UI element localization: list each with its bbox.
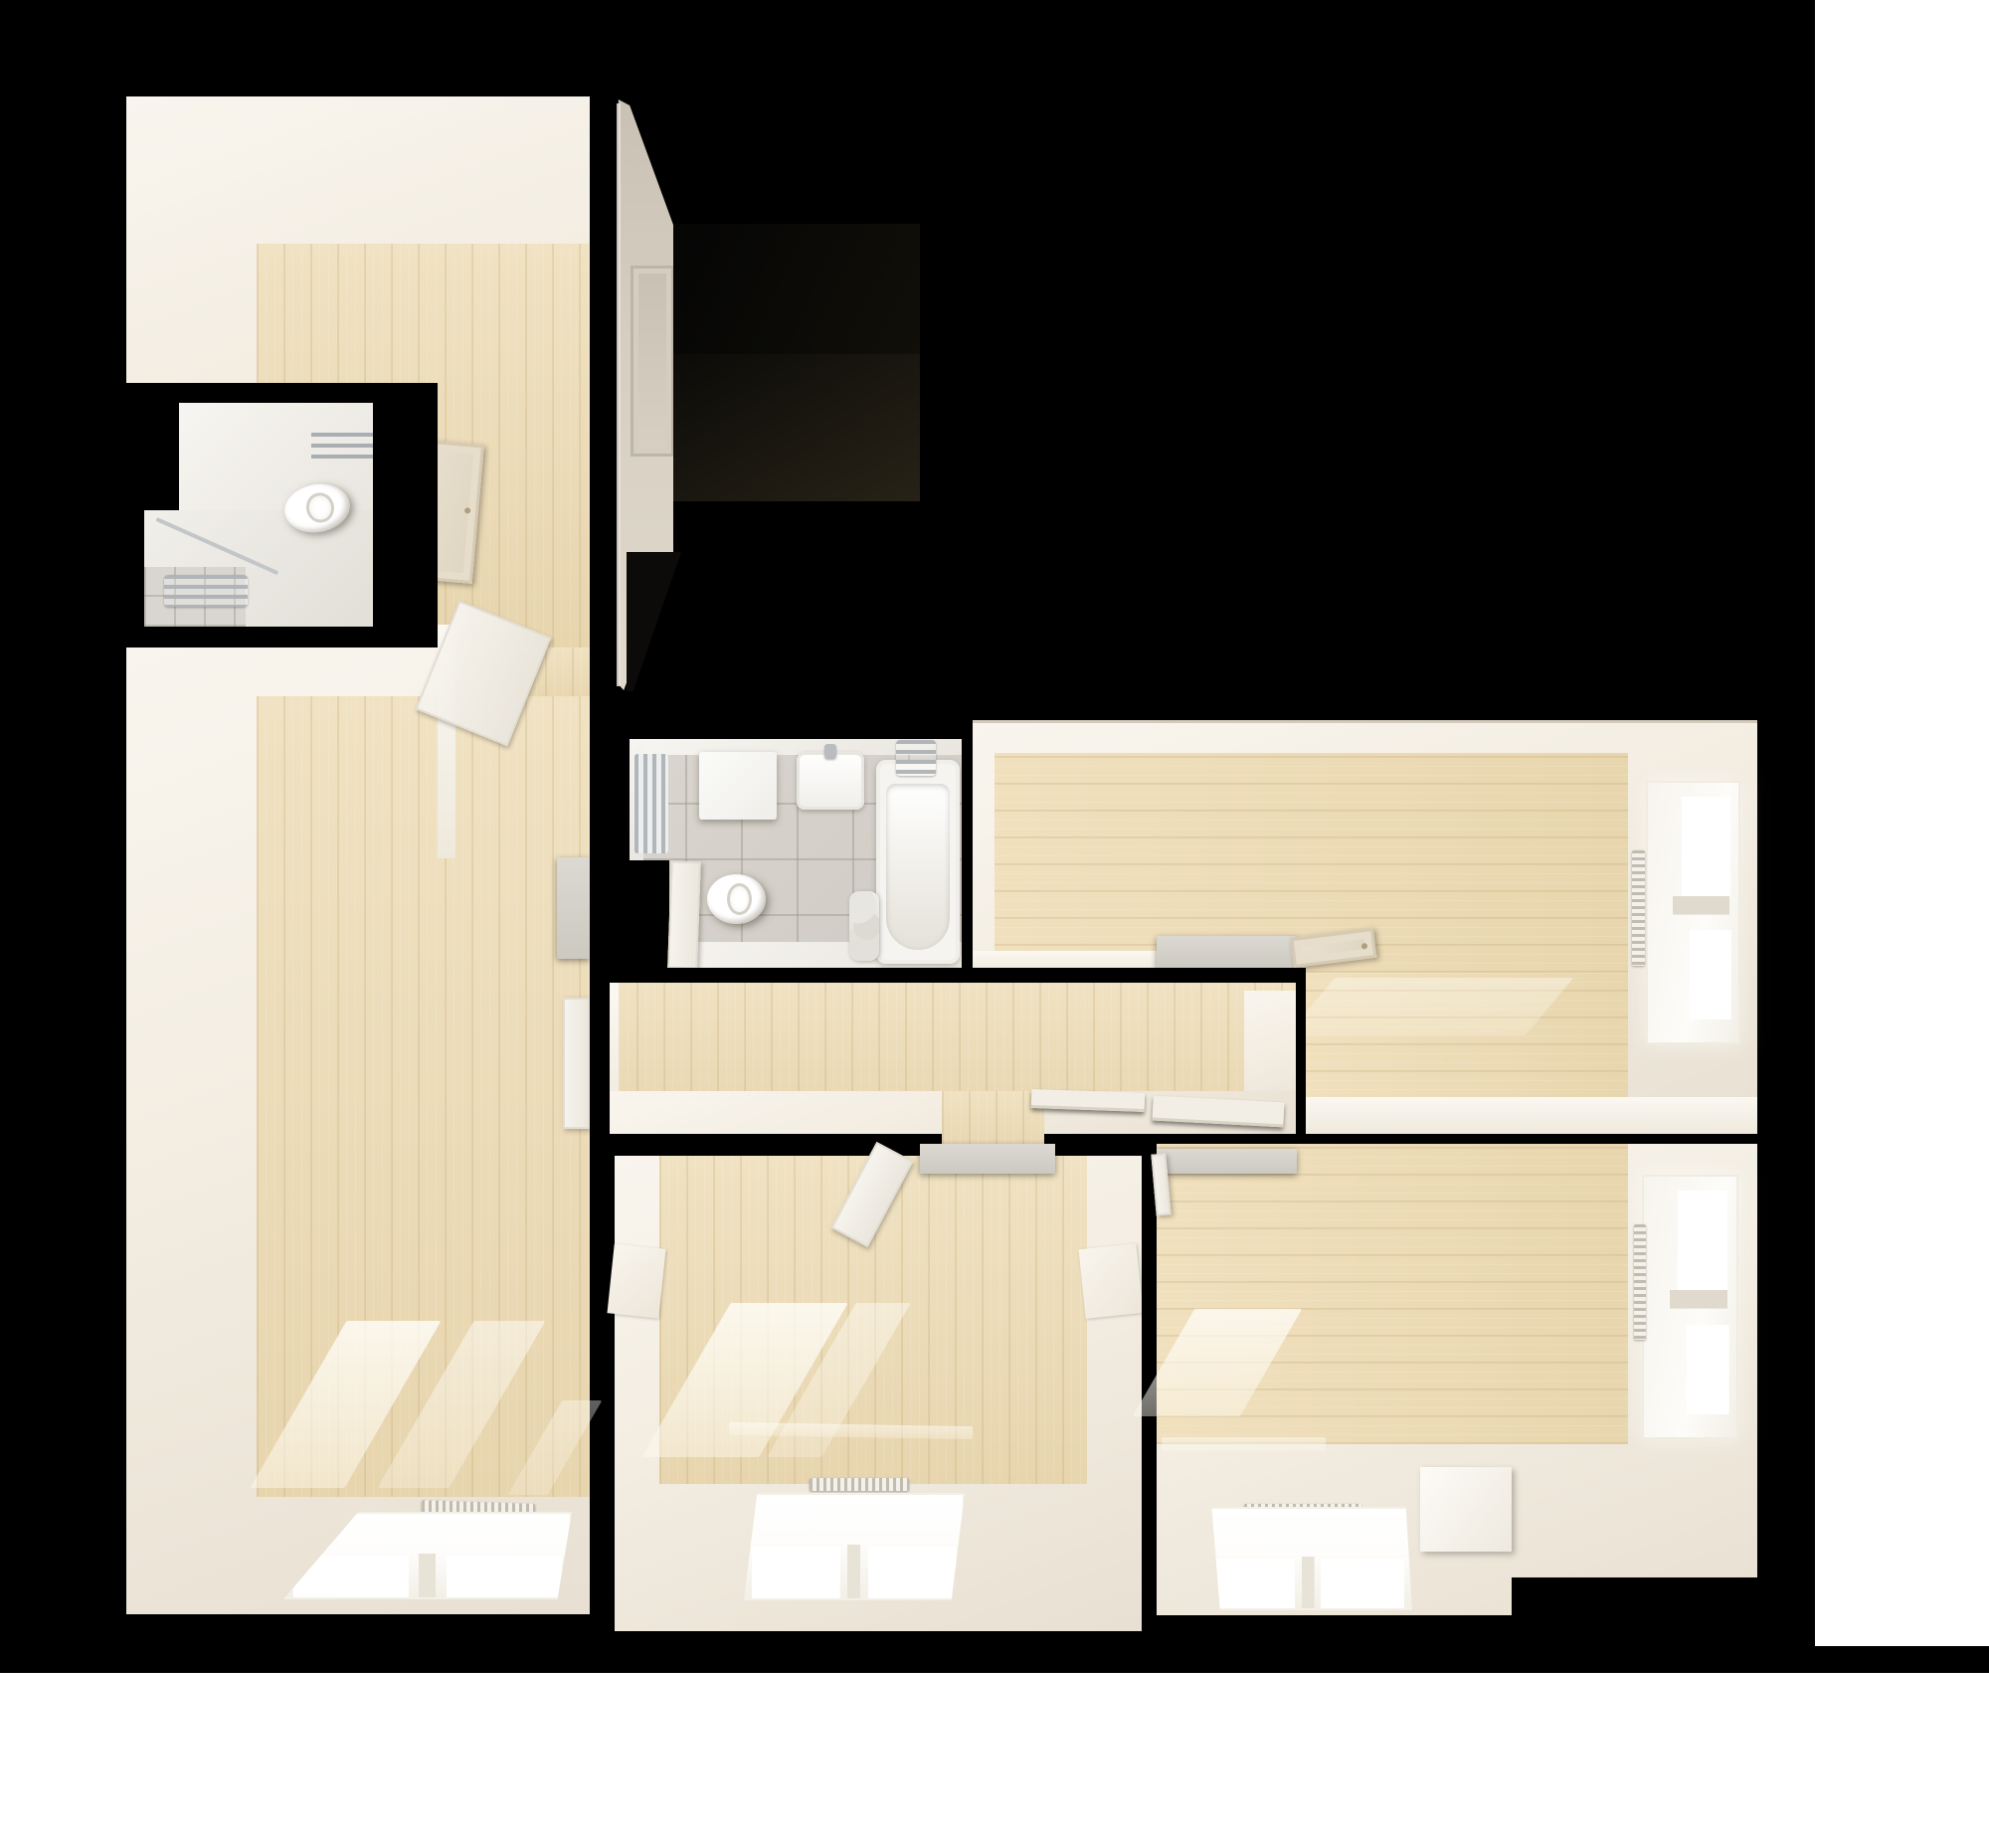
living-room-bottom-face-right xyxy=(1306,1097,1757,1134)
bedroom2-sun-strip xyxy=(1162,1437,1326,1451)
bedroom2-bottom-step-black xyxy=(1512,1577,1815,1673)
bedroom2-window-bottom xyxy=(1203,1507,1412,1610)
plan-black-strip-bottom-right xyxy=(1815,1646,1989,1673)
living-room-door-header xyxy=(1157,936,1297,968)
stair-wall-door-recess xyxy=(631,266,674,457)
dark-roof-face-lower xyxy=(673,354,920,501)
bathroom-sink xyxy=(797,752,864,810)
stair-wall-edge-highlight xyxy=(617,103,621,686)
corridor-threshold-left xyxy=(1031,1089,1146,1112)
left-room-door-to-corridor xyxy=(563,998,590,1129)
bedroom1-corner-wedge-right xyxy=(1079,1243,1144,1319)
floor-plan-stage xyxy=(0,0,1989,1848)
bedroom1-door-header xyxy=(920,1144,1055,1174)
bathroom-door-leaf xyxy=(667,861,701,970)
living-room-sun-patch xyxy=(1287,978,1574,1035)
bottom-white-margin xyxy=(0,1673,1989,1848)
bedroom1-radiator xyxy=(810,1478,909,1491)
bathroom-towels xyxy=(849,891,879,961)
left-room-floor xyxy=(257,696,590,1497)
living-room-window xyxy=(1646,781,1740,1044)
left-room-wall-niche xyxy=(557,857,590,959)
bathroom-wall-notch xyxy=(630,860,669,972)
bedroom1-window xyxy=(744,1493,965,1600)
wc-towel-rail xyxy=(311,433,373,461)
bathroom-washing-machine xyxy=(699,752,777,820)
bedroom2-radiator-right xyxy=(1634,1224,1646,1340)
living-room-top-edge xyxy=(973,720,1757,723)
dark-roof-face-upper xyxy=(673,224,920,354)
bedroom1-corner-wedge-left xyxy=(607,1243,665,1318)
bedroom2-door-header xyxy=(1157,1149,1297,1174)
living-room-radiator xyxy=(1632,850,1645,966)
bathroom-bathtub xyxy=(876,760,960,964)
bedroom2-step-block xyxy=(1420,1467,1512,1552)
bathtub-faucet xyxy=(896,740,936,776)
bedroom2-window-right xyxy=(1642,1175,1738,1439)
right-white-margin xyxy=(1815,0,1989,1646)
bathroom-toilet xyxy=(707,874,766,924)
wc-shower-mixer xyxy=(164,575,248,607)
bathroom-towel-radiator xyxy=(634,754,668,853)
